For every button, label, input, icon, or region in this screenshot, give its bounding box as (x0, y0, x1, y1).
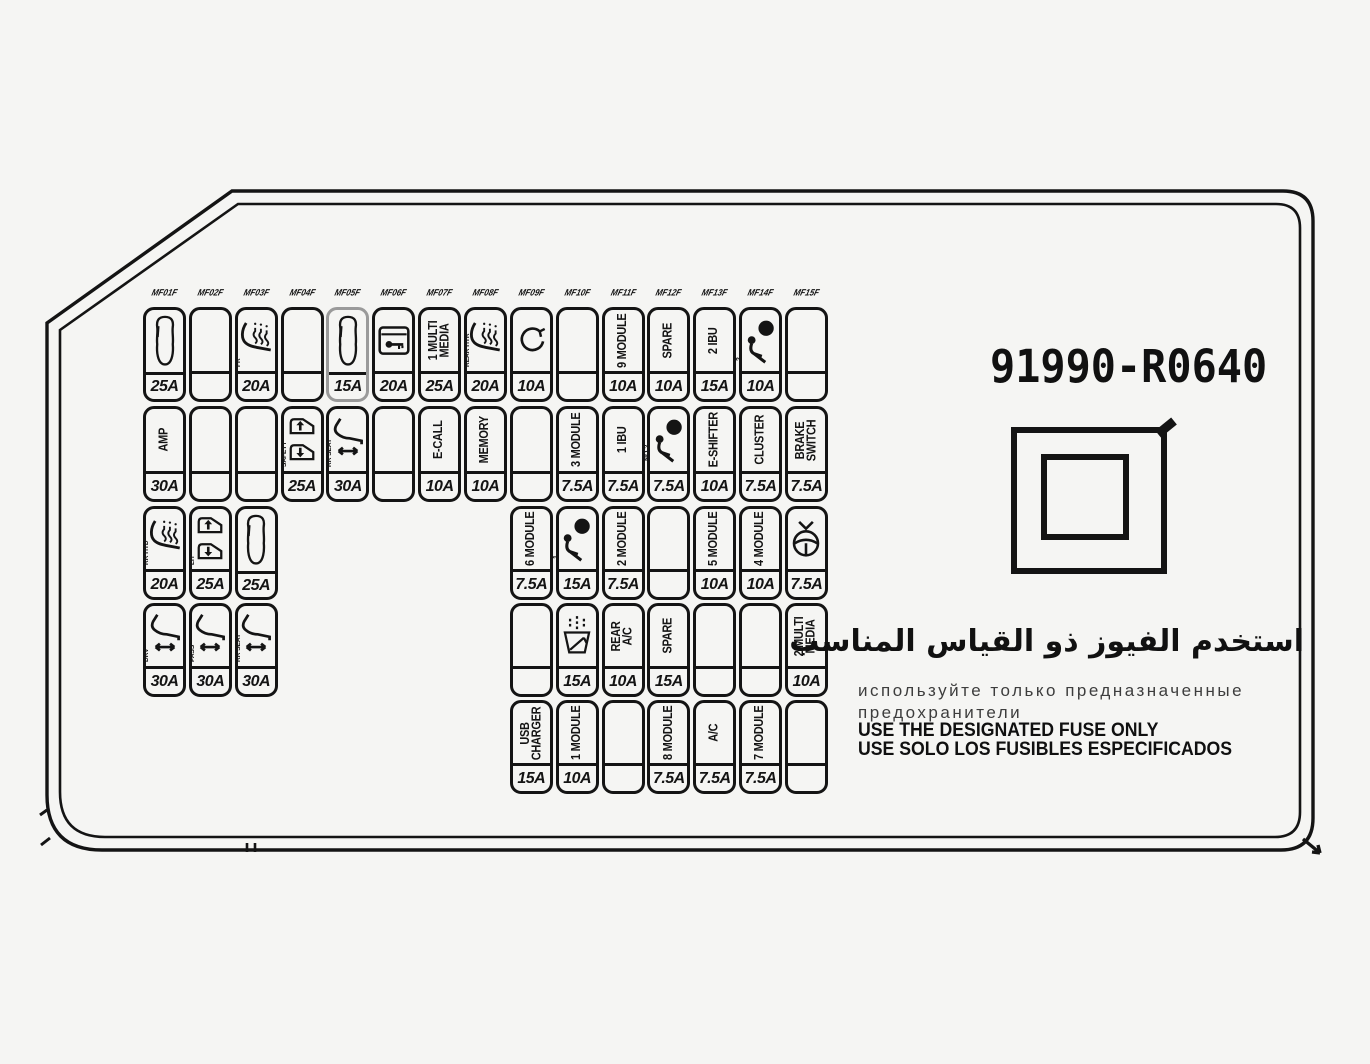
fuse-symbol-area: A/C (696, 703, 733, 763)
fuse-symbol-area: RR SEAT (238, 606, 275, 666)
fuse-side-label: RR SEAT (235, 634, 242, 662)
fuse-slot-a-c: A/C7.5A (693, 700, 736, 794)
fuse-amp-rating (742, 666, 779, 694)
car-icon (151, 310, 179, 372)
door-key-icon (377, 325, 411, 357)
fuse-symbol-area: USB CHARGER (513, 703, 550, 763)
fuse-slot-seat-power: RR SEAT30A (235, 603, 278, 697)
fuse-symbol-area: REAR A/C (605, 606, 642, 666)
fuse-label: USB CHARGER (520, 706, 542, 760)
fuse-label: E-SHIFTER (709, 412, 720, 467)
fuse-symbol-area: CLUSTER (742, 409, 779, 471)
fuse-slot-amp: AMP30A (143, 406, 186, 502)
fuse-slot-empty (785, 307, 828, 402)
fuse-side-label: FR (235, 358, 242, 367)
fuse-label: 2 IBU (709, 327, 720, 354)
fuse-slot-spare: SPARE15A (647, 603, 690, 697)
fuse-slot-empty (510, 406, 553, 502)
fuse-amp-rating: 15A (559, 569, 596, 597)
fuse-box-symbol-icon (1006, 414, 1206, 584)
fuse-side-label: RR HTD (143, 540, 150, 565)
fuse-symbol-area: 1 IBU (605, 409, 642, 471)
fuse-slot-multi-media: 1 MULTI MEDIA25A (418, 307, 461, 402)
fuse-side-label: PASS (189, 645, 196, 662)
fuse-slot-car: 25A (235, 506, 278, 600)
fuse-slot-car: 25A (143, 307, 186, 402)
fuse-label: 8 MODULE (663, 706, 674, 760)
fuse-amp-rating: 15A (513, 763, 550, 791)
fuse-amp-rating: 25A (238, 571, 275, 597)
fuse-symbol-area: SPARE (650, 606, 687, 666)
fuse-amp-rating (605, 763, 642, 791)
fuse-slot-module: 2 MODULE7.5A (602, 506, 645, 600)
fuse-slot-empty (235, 406, 278, 502)
window-icon (287, 414, 317, 466)
fuse-slot-airbag: 210A (739, 307, 782, 402)
fuse-amp-rating (192, 471, 229, 499)
fuse-amp-rating: 10A (467, 471, 504, 499)
fuse-label: 6 MODULE (526, 512, 537, 566)
fuse-symbol-area: SPARE (650, 310, 687, 371)
fuse-amp-rating: 10A (559, 763, 596, 791)
fuse-label: SPARE (663, 323, 674, 359)
fuse-symbol-area: 5 MODULE (696, 509, 733, 569)
washer-icon (558, 613, 596, 659)
fuse-amp-rating (788, 763, 825, 791)
fuse-symbol-area (284, 310, 321, 371)
fuse-label: 2 MODULE (618, 512, 629, 566)
fuse-symbol-area (696, 606, 733, 666)
fuse-slot-module: 3 MODULE7.5A (556, 406, 599, 502)
fuse-slot-module: 5 MODULE10A (693, 506, 736, 600)
fuse-slot-seat-power: DRV30A (143, 603, 186, 697)
fuse-column-code: MF03F (233, 287, 279, 297)
fuse-slot-seat-heat: RR HTD20A (143, 506, 186, 600)
fuse-amp-rating (192, 371, 229, 399)
fuse-slot-window: SAFETY25A (281, 406, 324, 502)
fuse-symbol-area: 1 MODULE (559, 703, 596, 763)
fuse-box-cover: MF01FMF02FMF03FMF04FMF05FMF06FMF07FMF08F… (0, 0, 1370, 1064)
rotate-icon (515, 324, 548, 357)
fuse-symbol-area (605, 703, 642, 763)
fuse-symbol-area (559, 310, 596, 371)
fuse-label: 4 MODULE (755, 512, 766, 566)
fuse-symbol-area (329, 310, 366, 372)
seat-heat-icon (238, 318, 274, 364)
notice-arabic: استخدم الفيوز ذو القياس المناسب (856, 624, 1304, 659)
fuse-slot-empty (189, 307, 232, 402)
fuse-symbol-area (375, 310, 412, 371)
fuse-slot-module: 7 MODULE7.5A (739, 700, 782, 794)
fuse-label: 1 MULTI MEDIA (429, 321, 451, 361)
fuse-amp-rating (696, 666, 733, 694)
fuse-amp-rating (375, 471, 412, 499)
fuse-amp-rating: 7.5A (513, 569, 550, 597)
fuse-slot-brake-switch: BRAKE SWITCH7.5A (785, 406, 828, 502)
fuse-symbol-area: SAFETY (284, 409, 321, 471)
fuse-symbol-area: BRAKE SWITCH (788, 409, 825, 471)
fuse-slot-empty (739, 603, 782, 697)
fuse-amp-rating: 7.5A (788, 569, 825, 597)
part-number: 91990-R0640 (990, 340, 1288, 393)
fuse-symbol-area (192, 409, 229, 471)
fuse-symbol-area (146, 310, 183, 372)
fuse-label: E-CALL (434, 421, 445, 460)
fuse-side-label: DRV (143, 648, 150, 662)
fuse-symbol-area (650, 509, 687, 569)
fuse-symbol-area: RR SEAT (329, 409, 366, 471)
fuse-slot-seat-heat: REAR HTR20A (464, 307, 507, 402)
fuse-column-code: MF09F (509, 287, 555, 297)
notice-english: USE THE DESIGNATED FUSE ONLY (858, 721, 1158, 740)
fuse-symbol-area (788, 509, 825, 569)
fuse-amp-rating: 10A (696, 569, 733, 597)
fuse-amp-rating: 25A (284, 471, 321, 499)
car-icon (242, 509, 270, 571)
fuse-slot-empty (785, 700, 828, 794)
fuse-amp-rating: 10A (742, 371, 779, 399)
fuse-amp-rating: 15A (696, 371, 733, 399)
fuse-slot-airbag: 115A (556, 506, 599, 600)
fuse-slot-washer: 15A (556, 603, 599, 697)
steering-icon (788, 518, 824, 560)
fuse-label: 5 MODULE (709, 512, 720, 566)
fuse-prefix: 2 (736, 357, 743, 361)
fuse-amp-rating: 7.5A (696, 763, 733, 791)
fuse-slot-empty (281, 307, 324, 402)
fuse-amp-rating: 25A (192, 569, 229, 597)
seat-heat-icon (467, 318, 503, 364)
fuse-symbol-area (513, 310, 550, 371)
fuse-column-code: MF11F (600, 287, 646, 297)
fuse-column-code: MF08F (463, 287, 509, 297)
seat-power-icon (193, 611, 227, 661)
fuse-slot-window: LH25A (189, 506, 232, 600)
fuse-amp-rating: 30A (146, 471, 183, 499)
fuse-symbol-area: E-CALL (421, 409, 458, 471)
fuse-prefix: 1 (553, 555, 560, 559)
fuse-amp-rating: 20A (146, 569, 183, 597)
fuse-amp-rating: 10A (421, 471, 458, 499)
fuse-slot-e-shifter: E-SHIFTER10A (693, 406, 736, 502)
fuse-label: 9 MODULE (618, 313, 629, 367)
fuse-symbol-area: 4 MODULE (742, 509, 779, 569)
fuse-amp-rating: 10A (605, 666, 642, 694)
fuse-amp-rating: 7.5A (605, 569, 642, 597)
fuse-slot-ibu: 2 IBU15A (693, 307, 736, 402)
fuse-label: MEMORY (480, 416, 491, 463)
fuse-prefix: NO.2 (644, 445, 651, 461)
fuse-symbol-area: 2 IBU (696, 310, 733, 371)
fuse-symbol-area: MEMORY (467, 409, 504, 471)
fuse-label: 3 MODULE (572, 413, 583, 467)
fuse-slot-seat-heat: FR20A (235, 307, 278, 402)
seat-heat-icon (147, 516, 183, 562)
fuse-column-code: MF01F (142, 287, 188, 297)
fuse-slot-module: 1 MODULE10A (556, 700, 599, 794)
airbag-icon (744, 318, 778, 364)
fuse-slot-empty (647, 506, 690, 600)
fuse-symbol-area (788, 703, 825, 763)
fuse-side-label: LH (189, 556, 196, 565)
fuse-amp-rating: 7.5A (650, 471, 687, 499)
fuse-label: 7 MODULE (755, 706, 766, 760)
fuse-amp-rating: 15A (650, 666, 687, 694)
fuse-label: BRAKE SWITCH (795, 419, 817, 461)
fuse-slot-ibu: 1 IBU7.5A (602, 406, 645, 502)
fuse-amp-rating (284, 371, 321, 399)
fuse-side-label: REAR HTR (464, 333, 471, 367)
fuse-label: SPARE (663, 618, 674, 654)
fuse-amp-rating: 10A (696, 471, 733, 499)
fuse-symbol-area (375, 409, 412, 471)
window-icon (195, 513, 225, 565)
fuse-symbol-area (238, 509, 275, 571)
fuse-symbol-area: 8 MODULE (650, 703, 687, 763)
fuse-slot-empty (510, 603, 553, 697)
fuse-slot-car: 15A (326, 307, 369, 402)
fuse-symbol-area: 2 MODULE (605, 509, 642, 569)
fuse-symbol-area (192, 310, 229, 371)
fuse-column-code: MF07F (417, 287, 463, 297)
fuse-side-label: SAFETY (281, 441, 288, 467)
fuse-amp-rating: 25A (146, 372, 183, 399)
fuse-slot-module: 4 MODULE10A (739, 506, 782, 600)
fuse-amp-rating (650, 569, 687, 597)
fuse-symbol-area: NO.2 (650, 409, 687, 471)
fuse-label: 1 MODULE (572, 706, 583, 760)
fuse-slot-module: 9 MODULE10A (602, 307, 645, 402)
fuse-symbol-area: FR (238, 310, 275, 371)
fuse-slot-door-key: 20A (372, 307, 415, 402)
fuse-side-label: RR SEAT (326, 439, 333, 467)
fuse-symbol-area: E-SHIFTER (696, 409, 733, 471)
fuse-symbol-area: 2 (742, 310, 779, 371)
fuse-amp-rating: 7.5A (742, 763, 779, 791)
seat-power-icon (331, 415, 365, 465)
seat-power-icon (239, 611, 273, 661)
fuse-amp-rating (788, 371, 825, 399)
fuse-slot-rotate: 10A (510, 307, 553, 402)
fuse-slot-empty (189, 406, 232, 502)
airbag-icon (560, 516, 594, 562)
fuse-amp-rating (513, 666, 550, 694)
fuse-label: 1 IBU (618, 427, 629, 454)
fuse-slot-airbag: NO.27.5A (647, 406, 690, 502)
fuse-slot-usb-charger: USB CHARGER15A (510, 700, 553, 794)
fuse-slot-seat-power: PASS30A (189, 603, 232, 697)
fuse-amp-rating: 10A (605, 371, 642, 399)
fuse-amp-rating: 10A (788, 666, 825, 694)
fuse-amp-rating: 30A (238, 666, 275, 694)
fuse-slot-rear-a-c: REAR A/C10A (602, 603, 645, 697)
fuse-label: A/C (709, 724, 720, 742)
fuse-label: REAR A/C (612, 621, 634, 651)
fuse-column-code: MF05F (325, 287, 371, 297)
fuse-amp-rating: 20A (467, 371, 504, 399)
fuse-amp-rating: 20A (375, 371, 412, 399)
seat-power-icon (148, 611, 182, 661)
fuse-amp-rating: 7.5A (788, 471, 825, 499)
fuse-column-code: MF13F (692, 287, 738, 297)
fuse-symbol-area (513, 409, 550, 471)
fuse-symbol-area: DRV (146, 606, 183, 666)
fuse-symbol-area: 3 MODULE (559, 409, 596, 471)
fuse-amp-rating: 7.5A (605, 471, 642, 499)
fuse-amp-rating: 10A (650, 371, 687, 399)
fuse-symbol-area: LH (192, 509, 229, 569)
fuse-symbol-area (513, 606, 550, 666)
fuse-slot-steering: 7.5A (785, 506, 828, 600)
fuse-column-code: MF02F (188, 287, 234, 297)
fuse-amp-rating: 10A (742, 569, 779, 597)
fuse-symbol-area: 7 MODULE (742, 703, 779, 763)
fuse-slot-cluster: CLUSTER7.5A (739, 406, 782, 502)
fuse-amp-rating: 25A (421, 371, 458, 399)
fuse-symbol-area: AMP (146, 409, 183, 471)
fuse-amp-rating (559, 371, 596, 399)
fuse-slot-spare: SPARE10A (647, 307, 690, 402)
fuse-symbol-area: 6 MODULE (513, 509, 550, 569)
fuse-symbol-area: 1 (559, 509, 596, 569)
fuse-amp-rating: 7.5A (742, 471, 779, 499)
fuse-label: AMP (159, 428, 170, 452)
fuse-column-code: MF06F (371, 287, 417, 297)
car-icon (334, 310, 362, 372)
notice-russian: используйте только предназначенные предо… (858, 680, 1318, 724)
fuse-amp-rating: 15A (329, 372, 366, 399)
fuse-amp-rating: 7.5A (559, 471, 596, 499)
fuse-amp-rating: 30A (329, 471, 366, 499)
fuse-slot-module: 6 MODULE7.5A (510, 506, 553, 600)
fuse-symbol-area (559, 606, 596, 666)
fuse-symbol-area: RR HTD (146, 509, 183, 569)
fuse-amp-rating: 20A (238, 371, 275, 399)
fuse-column-code: MF12F (646, 287, 692, 297)
fuse-column-code: MF10F (554, 287, 600, 297)
fuse-symbol-area (742, 606, 779, 666)
fuse-symbol-area: REAR HTR (467, 310, 504, 371)
fuse-slot-seat-power: RR SEAT30A (326, 406, 369, 502)
fuse-slot-empty (602, 700, 645, 794)
fuse-column-code: MF04F (279, 287, 325, 297)
fuse-amp-rating: 30A (192, 666, 229, 694)
fuse-symbol-area (238, 409, 275, 471)
fuse-slot-empty (556, 307, 599, 402)
fuse-symbol-area: 1 MULTI MEDIA (421, 310, 458, 371)
fuse-slot-e-call: E-CALL10A (418, 406, 461, 502)
fuse-column-code: MF15F (784, 287, 830, 297)
fuse-slot-empty (372, 406, 415, 502)
fuse-amp-rating (238, 471, 275, 499)
fuse-amp-rating: 10A (513, 371, 550, 399)
airbag-icon (652, 417, 686, 463)
fuse-symbol-area: PASS (192, 606, 229, 666)
fuse-symbol-area: 9 MODULE (605, 310, 642, 371)
notice-spanish: USE SOLO LOS FUSIBLES ESPECIFICADOS (858, 740, 1232, 759)
fuse-slot-memory: MEMORY10A (464, 406, 507, 502)
fuse-amp-rating: 7.5A (650, 763, 687, 791)
fuse-slot-empty (693, 603, 736, 697)
fuse-column-code: MF14F (738, 287, 784, 297)
fuse-symbol-area (788, 310, 825, 371)
fuse-amp-rating: 15A (559, 666, 596, 694)
fuse-amp-rating: 30A (146, 666, 183, 694)
fuse-label: CLUSTER (755, 415, 766, 465)
fuse-slot-module: 8 MODULE7.5A (647, 700, 690, 794)
fuse-amp-rating (513, 471, 550, 499)
